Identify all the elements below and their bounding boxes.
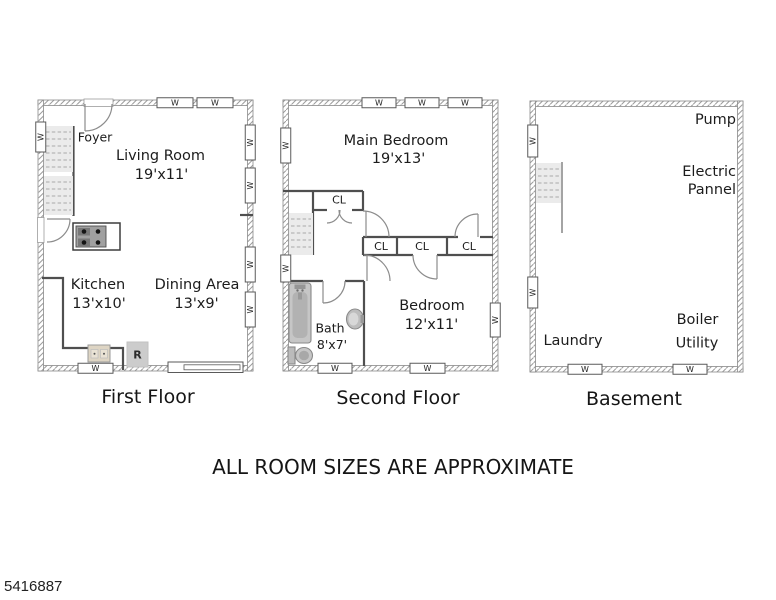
window-marker: W	[410, 363, 445, 373]
bath-door	[323, 281, 345, 303]
closet-bifold-door	[327, 210, 352, 223]
window-marker: W	[490, 303, 500, 337]
svg-text:W: W	[461, 98, 469, 107]
sliding-door-icon	[168, 362, 243, 373]
window-marker: W	[197, 98, 233, 108]
electric-panel-label-line2: Pannel	[688, 182, 736, 198]
kitchen-sink-icon	[88, 345, 110, 362]
svg-text:W: W	[331, 364, 339, 373]
main-bedroom-size: 19'x13'	[372, 151, 425, 167]
bedroom-size: 12'x11'	[405, 317, 458, 333]
hall-to-bedroom-door	[364, 255, 390, 281]
floor-plans-svg: R W W W W W W W W Foyer Living Room 19'x…	[0, 0, 776, 600]
svg-text:W: W	[246, 138, 255, 146]
range-icon	[73, 223, 120, 250]
bath-sink-icon	[347, 309, 365, 329]
main-bedroom-closet-door	[455, 214, 478, 237]
window-marker: W	[448, 98, 482, 108]
closet-label: CL	[462, 240, 477, 253]
second-floor-interior-walls	[283, 191, 493, 366]
toilet-icon	[288, 347, 313, 364]
svg-text:W: W	[281, 264, 290, 272]
closet-label: CL	[332, 194, 347, 207]
listing-number: 5416887	[4, 578, 62, 595]
window-marker: W	[36, 122, 46, 152]
bedroom-closet-door	[413, 255, 437, 279]
window-marker: W	[78, 363, 113, 373]
first-floor-title: First Floor	[101, 386, 194, 408]
refrigerator-label: R	[133, 349, 142, 362]
window-marker: W	[528, 125, 538, 157]
svg-text:W: W	[424, 364, 432, 373]
kitchen-size: 13'x10'	[72, 296, 125, 312]
svg-text:W: W	[528, 137, 537, 145]
electric-panel-label-line1: Electric	[682, 164, 736, 180]
svg-text:W: W	[211, 98, 219, 107]
basement-outer-walls	[530, 101, 743, 372]
svg-text:W: W	[246, 181, 255, 189]
bath-size: 8'x7'	[317, 337, 347, 352]
svg-text:W: W	[36, 133, 45, 141]
svg-text:W: W	[246, 305, 255, 313]
foyer-label: Foyer	[78, 130, 113, 145]
svg-text:W: W	[418, 98, 426, 107]
svg-text:W: W	[581, 365, 589, 374]
living-room-label: Living Room	[116, 148, 205, 164]
window-marker: W	[245, 247, 255, 282]
basement-title: Basement	[586, 388, 682, 410]
pump-label: Pump	[695, 112, 736, 128]
second-floor-title: Second Floor	[336, 387, 459, 409]
first-floor-plan: R W W W W W W W W Foyer Living Room 19'x…	[36, 98, 256, 374]
svg-text:W: W	[491, 316, 500, 324]
window-marker: W	[281, 128, 291, 163]
window-marker: W	[318, 363, 352, 373]
closet-label: CL	[415, 240, 430, 253]
living-room-size: 19'x11'	[135, 167, 188, 183]
window-marker: W	[245, 168, 255, 203]
closet-label: CL	[374, 240, 389, 253]
svg-text:W: W	[528, 288, 537, 296]
bedroom-label: Bedroom	[399, 298, 465, 314]
svg-text:W: W	[246, 260, 255, 268]
basement-plan: W W W W Pump Electric Pannel Laundry Boi…	[528, 101, 743, 374]
window-marker: W	[281, 255, 291, 282]
window-marker: W	[245, 292, 255, 327]
window-marker: W	[405, 98, 439, 108]
hall-to-main-bedroom-door	[363, 211, 389, 237]
window-marker: W	[528, 277, 538, 308]
svg-text:W: W	[281, 141, 290, 149]
stairs-first-floor-upper	[44, 126, 73, 172]
svg-text:W: W	[92, 364, 100, 373]
stairs-second-floor	[289, 213, 313, 255]
entry-door	[84, 99, 113, 131]
utility-label: Utility	[676, 336, 719, 352]
stairs-first-floor-lower	[44, 176, 73, 215]
dining-area-label: Dining Area	[155, 277, 240, 293]
side-door	[38, 218, 71, 243]
refrigerator-icon: R	[127, 342, 148, 367]
kitchen-label: Kitchen	[71, 277, 126, 293]
disclaimer-text: ALL ROOM SIZES ARE APPROXIMATE	[212, 455, 574, 479]
stairs-basement	[536, 162, 562, 233]
bath-label: Bath	[315, 321, 344, 336]
svg-text:W: W	[171, 98, 179, 107]
main-bedroom-label: Main Bedroom	[344, 133, 449, 149]
svg-text:W: W	[686, 365, 694, 374]
svg-text:W: W	[375, 98, 383, 107]
window-marker: W	[157, 98, 193, 108]
second-floor-plan: W W W W W W W W Main Bedroom 19'x13' Bed…	[281, 98, 501, 374]
laundry-label: Laundry	[543, 333, 603, 349]
window-marker: W	[362, 98, 396, 108]
window-marker: W	[245, 125, 255, 160]
dining-area-size: 13'x9'	[174, 296, 218, 312]
bathtub-icon	[289, 283, 311, 343]
window-marker: W	[568, 364, 602, 374]
boiler-label: Boiler	[677, 312, 719, 328]
floor-plan-canvas: R W W W W W W W W Foyer Living Room 19'x…	[0, 0, 776, 600]
window-marker: W	[673, 364, 707, 374]
